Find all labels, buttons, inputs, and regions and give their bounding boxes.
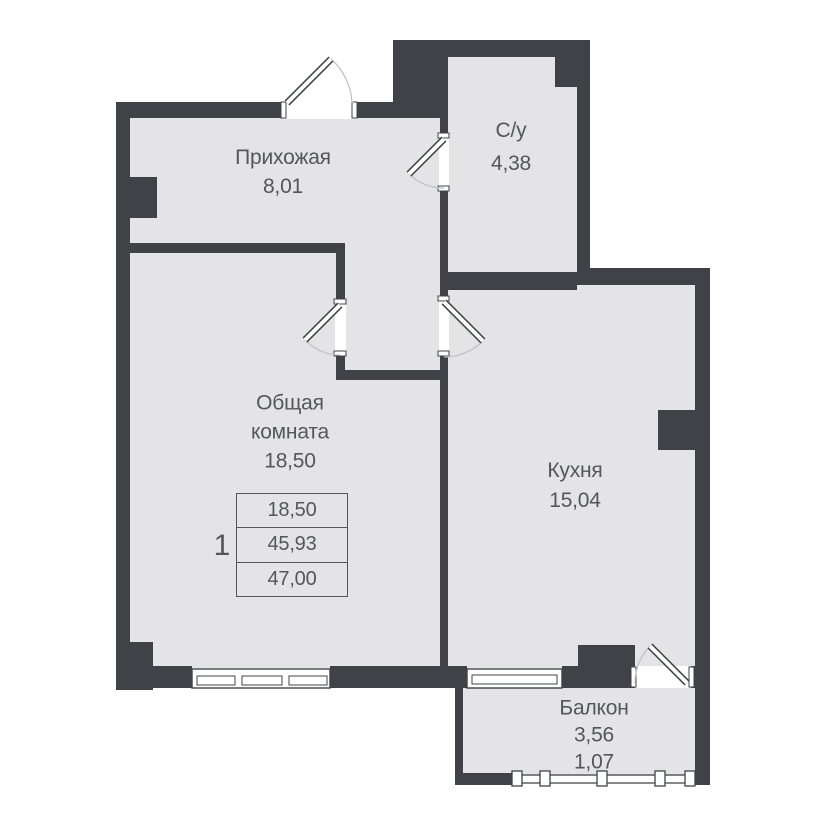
apartment-floor-plan: Прихожая 8,01 С/у 4,38 Общая комната 18,… bbox=[0, 0, 828, 828]
kitchen-pillar bbox=[658, 410, 695, 450]
balcony-area: 3,56 bbox=[559, 722, 628, 749]
kitchen-name: Кухня bbox=[547, 456, 602, 486]
balcony-name: Балкон bbox=[559, 695, 628, 722]
bathroom-name: С/у bbox=[491, 114, 531, 147]
summary-total-area: 47,00 bbox=[237, 562, 347, 596]
kitchen-window bbox=[467, 669, 562, 688]
hallway-area: 8,01 bbox=[235, 172, 331, 201]
kitchen-label: Кухня 15,04 bbox=[547, 456, 602, 516]
balcony-label: Балкон 3,56 1,07 bbox=[559, 695, 628, 776]
corridor-floor bbox=[345, 243, 440, 373]
living-room-window bbox=[192, 669, 330, 688]
living-room-name: Общая комната bbox=[227, 389, 353, 447]
summary-living-area: 18,50 bbox=[237, 494, 347, 527]
wall-pilaster bbox=[130, 177, 157, 218]
wall-step bbox=[118, 642, 153, 690]
area-summary-table: 18,50 45,93 47,00 bbox=[236, 493, 348, 597]
summary-area-without-balcony: 45,93 bbox=[237, 527, 347, 561]
living-room-label: Общая комната 18,50 bbox=[227, 389, 353, 476]
rooms-count: 1 bbox=[214, 529, 231, 563]
floor-plan-drawing bbox=[0, 0, 828, 828]
hallway-label: Прихожая 8,01 bbox=[235, 143, 331, 201]
kitchen-area: 15,04 bbox=[547, 486, 602, 516]
balcony-area-reduced: 1,07 bbox=[559, 749, 628, 776]
bathroom-label: С/у 4,38 bbox=[491, 114, 531, 180]
living-room-area: 18,50 bbox=[227, 447, 353, 476]
bathroom-area: 4,38 bbox=[491, 147, 531, 180]
hallway-name: Прихожая bbox=[235, 143, 331, 172]
entrance-door bbox=[287, 59, 352, 103]
